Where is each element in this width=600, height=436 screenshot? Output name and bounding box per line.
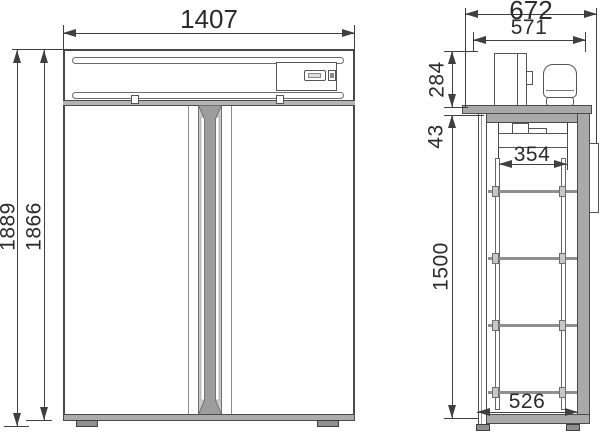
compressor	[543, 64, 577, 98]
dim-width-label: 1407	[159, 6, 259, 32]
dim-depth-body-label: 571	[489, 17, 569, 38]
top-insulation	[487, 114, 589, 123]
shelf-bracket	[559, 186, 566, 197]
condenser	[494, 53, 518, 107]
arrowhead-right-icon	[584, 10, 597, 18]
vent-slot-bottom	[72, 92, 344, 99]
rear-junction-box	[589, 143, 599, 213]
dim-depth-body-line	[473, 40, 586, 41]
door-gap-right	[231, 106, 232, 414]
arrowhead-down-icon	[448, 94, 456, 107]
compressor-seam	[546, 90, 574, 91]
arrowhead-right-icon	[342, 29, 355, 37]
side-foot-rear	[566, 424, 580, 431]
dim-height-overall-label: 1889	[0, 187, 19, 267]
arrowhead-left-icon	[465, 10, 478, 18]
extension-line	[444, 107, 468, 108]
display-screen	[308, 73, 321, 78]
arrowhead-down-icon	[40, 407, 48, 420]
arrowhead-down-icon	[448, 405, 456, 418]
arrowhead-up-icon	[13, 50, 21, 63]
extension-line	[26, 420, 52, 421]
extension-line	[465, 8, 466, 107]
technical-drawing: 1407 1889 1866	[0, 0, 600, 436]
door-gap-left	[188, 106, 189, 414]
dim-interior-height-label: 1500	[431, 227, 452, 307]
side-foot-front	[476, 424, 490, 431]
condenser-bracket	[526, 71, 533, 85]
arrowhead-left-icon	[473, 36, 486, 44]
extension-line	[444, 418, 478, 419]
arrowhead-right-icon	[573, 36, 586, 44]
shelf-bracket	[492, 186, 499, 197]
shelf-bracket	[492, 320, 499, 331]
side-door-seam	[481, 114, 482, 428]
center-mullion	[194, 105, 226, 415]
shelf-bracket	[559, 253, 566, 264]
evaporator-step-high	[512, 123, 529, 134]
arrowhead-up-icon	[40, 50, 48, 63]
extension-line	[596, 8, 597, 144]
shelf-bracket	[559, 320, 566, 331]
extension-line	[4, 426, 29, 427]
arrowhead-up-icon	[448, 51, 456, 64]
evaporator-step-low	[528, 128, 547, 134]
door-hinge-left	[131, 95, 139, 104]
shelf-bracket	[492, 253, 499, 264]
door-hinge-right	[276, 95, 284, 104]
foot-front-right	[317, 420, 339, 427]
arrowhead-down-icon	[13, 413, 21, 426]
dim-interior-depth-label: 526	[487, 391, 567, 412]
base-rail	[63, 414, 355, 421]
rear-wall	[577, 114, 589, 423]
indicator-dot-icon	[330, 73, 334, 78]
dim-top-offset-label: 43	[426, 97, 447, 177]
dim-height-body-label: 1866	[24, 187, 45, 267]
dim-evaporator-label: 354	[492, 144, 572, 165]
arrowhead-left-icon	[63, 29, 76, 37]
foot-front-left	[76, 420, 98, 427]
